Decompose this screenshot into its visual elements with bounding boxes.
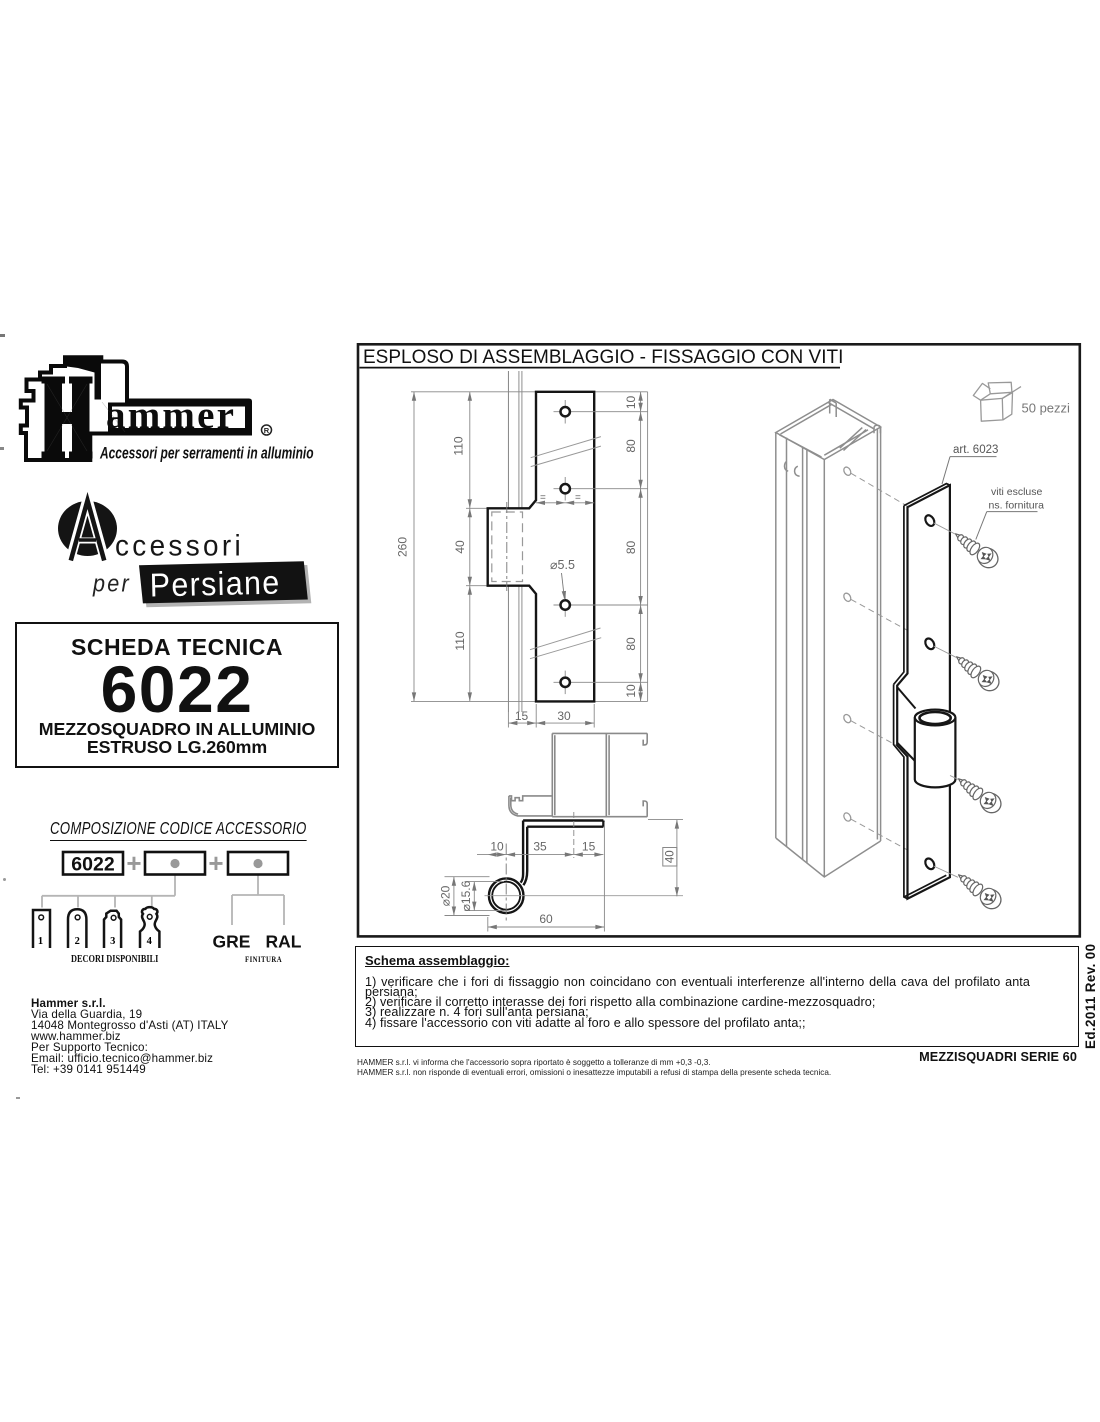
svg-text:80: 80 xyxy=(624,541,638,555)
svg-text:110: 110 xyxy=(452,436,466,455)
svg-text:4: 4 xyxy=(147,936,153,947)
svg-text:80: 80 xyxy=(624,439,638,453)
svg-text:15: 15 xyxy=(515,709,529,723)
svg-text:+: + xyxy=(208,848,223,878)
svg-text:⌀15.6: ⌀15.6 xyxy=(459,880,473,911)
svg-text:2: 2 xyxy=(75,936,80,947)
svg-text:ns. fornitura: ns. fornitura xyxy=(989,500,1045,512)
svg-text:viti escluse: viti escluse xyxy=(991,486,1043,498)
svg-text:art. 6023: art. 6023 xyxy=(953,444,998,456)
svg-text:50 pezzi: 50 pezzi xyxy=(1022,401,1071,416)
svg-text:⌀5.5: ⌀5.5 xyxy=(550,558,575,572)
svg-text:10: 10 xyxy=(624,684,638,698)
svg-text:30: 30 xyxy=(557,709,571,723)
svg-text:15: 15 xyxy=(582,839,596,853)
svg-text:R: R xyxy=(264,426,270,435)
svg-text:6022: 6022 xyxy=(71,854,115,876)
svg-text:per: per xyxy=(92,569,131,596)
svg-text:1: 1 xyxy=(38,936,43,947)
svg-text:110: 110 xyxy=(453,631,467,650)
svg-text:Persiane: Persiane xyxy=(149,563,281,603)
svg-text:80: 80 xyxy=(624,637,638,651)
svg-text:10: 10 xyxy=(490,839,504,853)
svg-text:GRE: GRE xyxy=(213,932,251,952)
svg-text:ccessori: ccessori xyxy=(115,530,244,563)
svg-text:Accessori per serramenti in al: Accessori per serramenti in alluminio xyxy=(99,445,313,463)
svg-text:ammer: ammer xyxy=(106,394,236,437)
svg-text:40: 40 xyxy=(453,540,467,554)
svg-text:10: 10 xyxy=(624,396,638,410)
svg-text:=: = xyxy=(575,492,581,503)
svg-text:Ed.2011 Rev. 00: Ed.2011 Rev. 00 xyxy=(1083,943,1098,1049)
svg-text:3: 3 xyxy=(110,936,115,947)
svg-text:260: 260 xyxy=(396,537,410,557)
svg-text:ESPLOSO DI ASSEMBLAGGIO - FISS: ESPLOSO DI ASSEMBLAGGIO - FISSAGGIO CON … xyxy=(363,347,843,368)
svg-text:RAL: RAL xyxy=(266,932,302,952)
svg-text:60: 60 xyxy=(539,912,553,926)
svg-text:35: 35 xyxy=(533,839,547,853)
svg-text:⌀20: ⌀20 xyxy=(438,885,452,906)
svg-text:+: + xyxy=(126,848,141,878)
svg-text:40: 40 xyxy=(664,850,676,863)
